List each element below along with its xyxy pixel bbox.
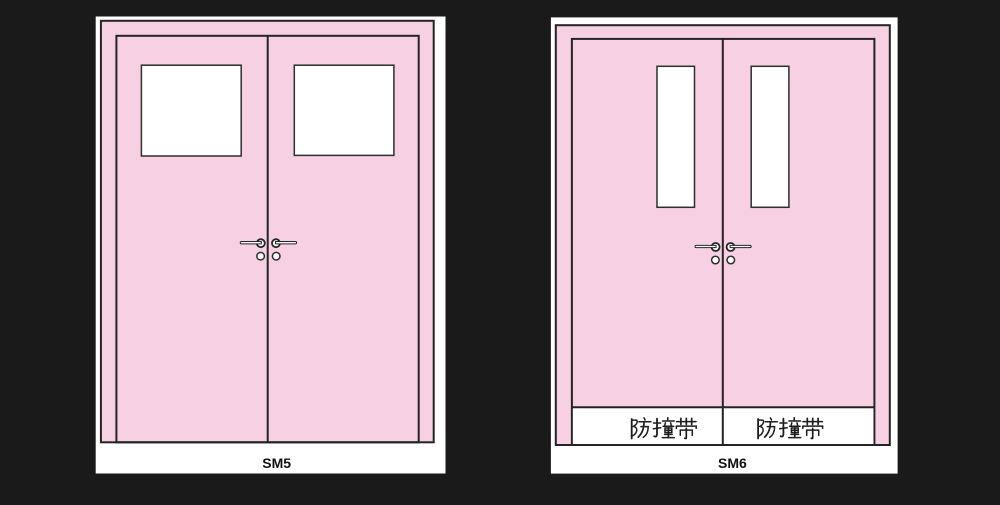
svg-text:SM6: SM6: [718, 455, 747, 471]
svg-text:SM5: SM5: [262, 455, 291, 471]
